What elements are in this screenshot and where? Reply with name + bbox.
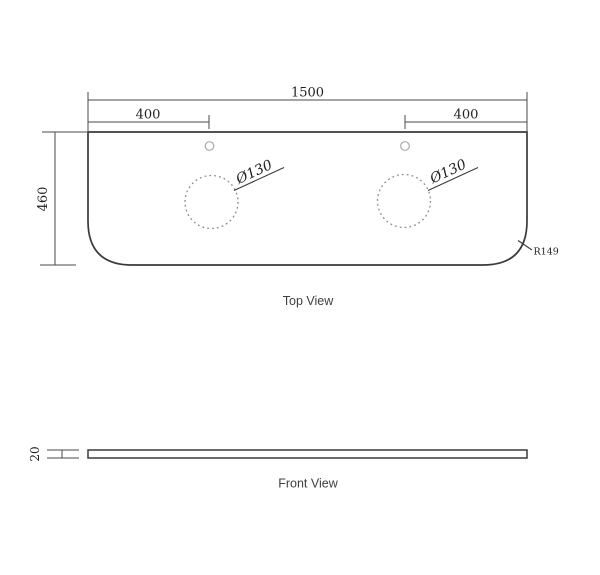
faucet-hole-left [205,142,214,151]
faucet-hole-right [401,142,410,151]
benchtop-front-profile [88,450,527,458]
technical-drawing: 1500 400 400 460 [0,0,600,575]
corner-radius-label: R149 [534,247,559,258]
dim-thickness: 20 [28,446,79,461]
dim-overall-depth: 460 [36,132,87,265]
front-view: 20 Front View [28,446,527,490]
drawing-canvas: 1500 400 400 460 [0,0,600,575]
dim-right-hole-offset-label: 400 [454,108,479,123]
dim-right-hole-offset: 400 [405,108,527,130]
dim-left-hole-offset: 400 [88,108,209,130]
dim-overall-width-label: 1500 [291,86,324,101]
front-view-title: Front View [278,477,338,491]
top-view: 1500 400 400 460 [36,86,559,309]
top-view-title: Top View [283,294,334,308]
dim-thickness-label: 20 [28,446,42,461]
dim-overall-depth-label: 460 [36,187,51,212]
dim-left-hole-offset-label: 400 [136,108,161,123]
benchtop-outline [88,132,527,265]
